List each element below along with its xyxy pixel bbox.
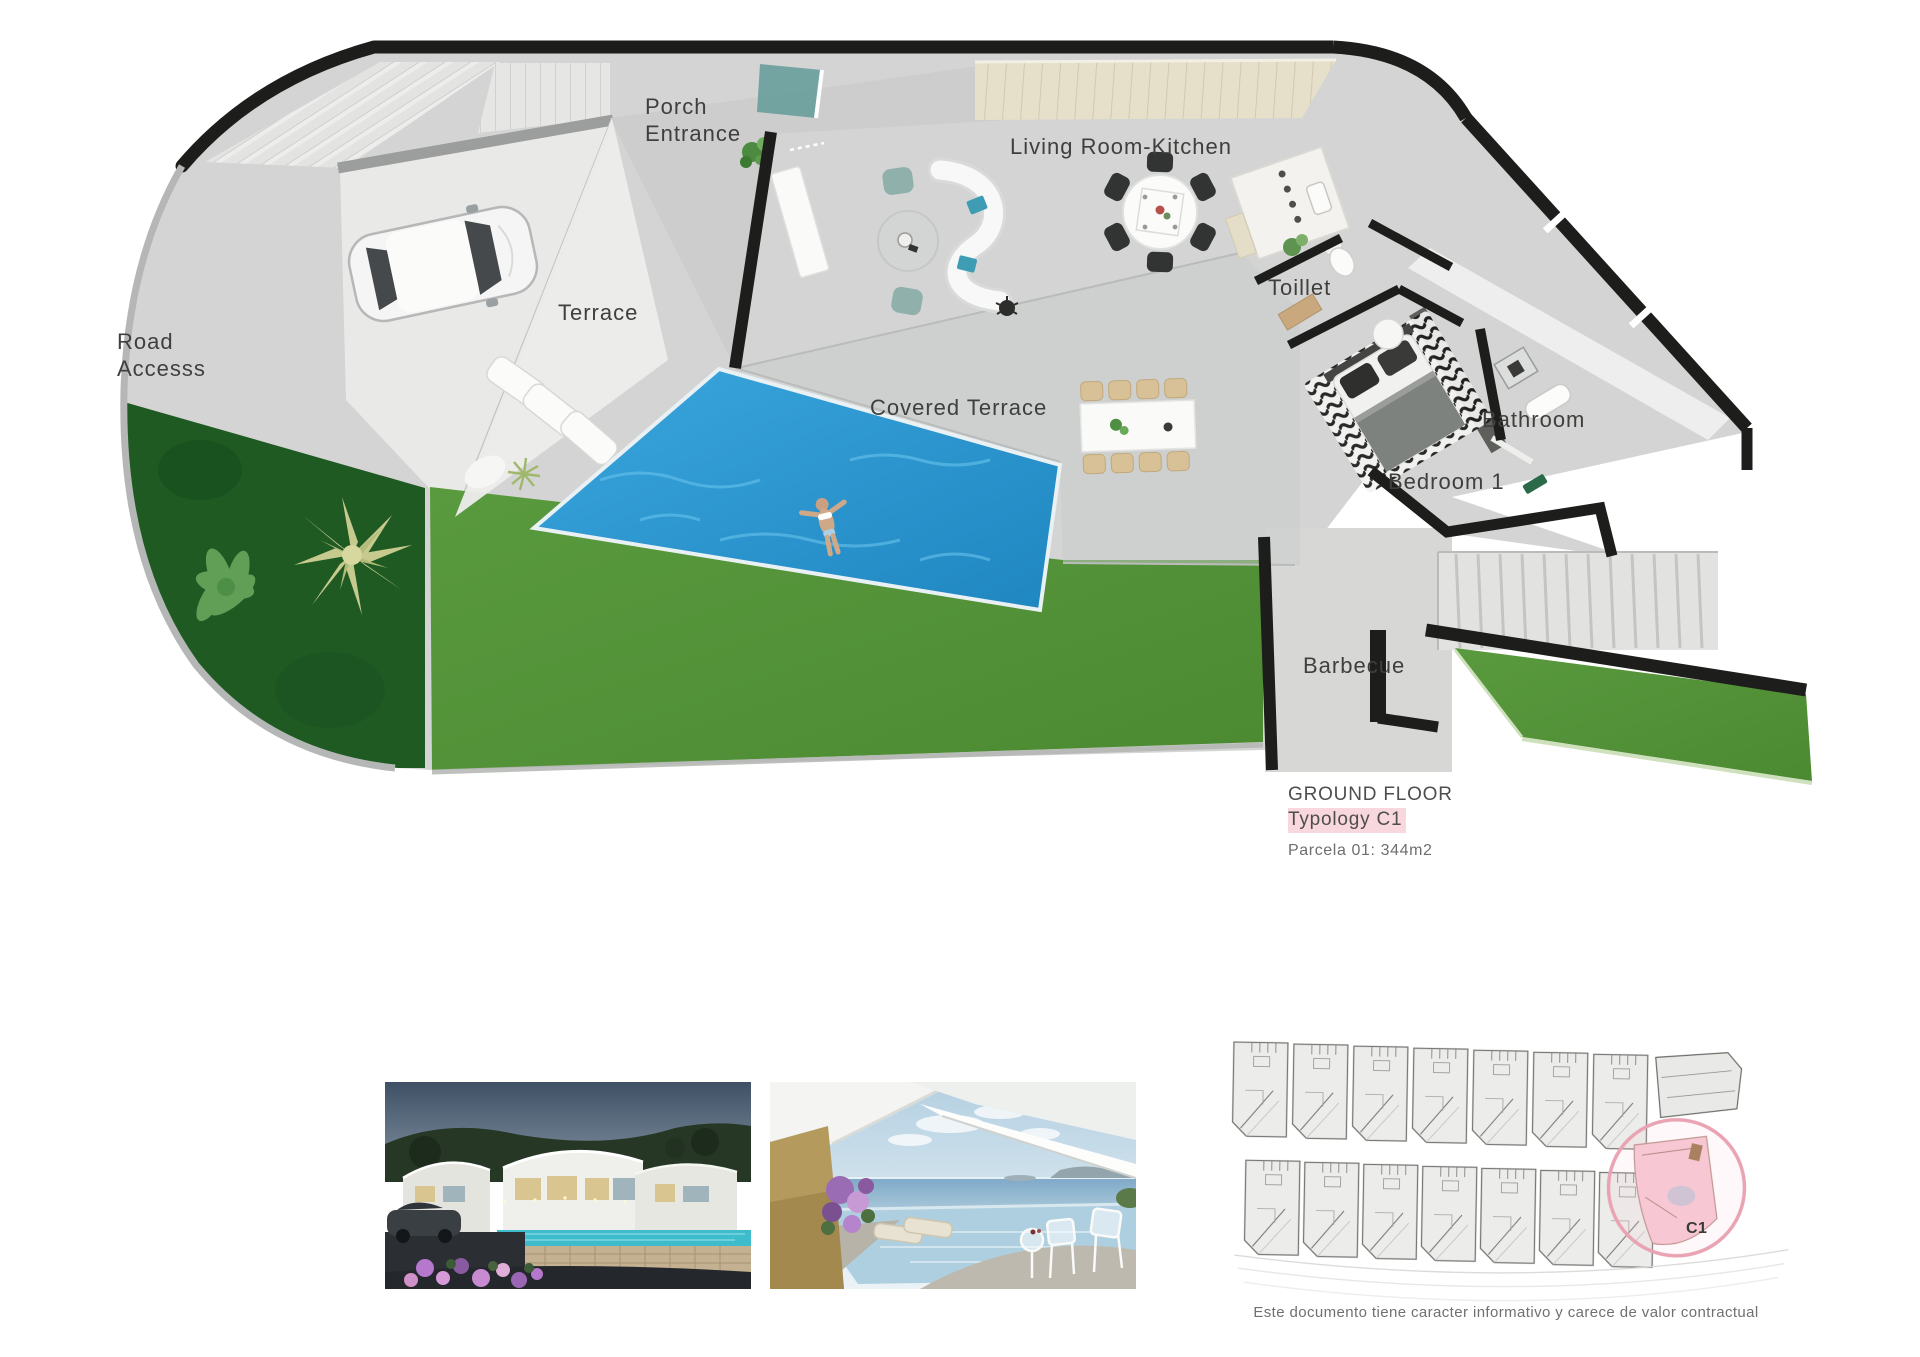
site-plan-map bbox=[1230, 1042, 1792, 1306]
floor-plan-illustration bbox=[0, 0, 1920, 1357]
garden-shade bbox=[275, 652, 385, 728]
photo-villa-exterior bbox=[385, 1082, 751, 1289]
plan-typology: Typology C1 bbox=[1288, 808, 1406, 833]
ottoman bbox=[881, 166, 914, 196]
photo-terrace-view bbox=[770, 1082, 1144, 1289]
plan-title: GROUND FLOOR bbox=[1288, 784, 1453, 806]
bedside-table bbox=[1373, 319, 1403, 349]
wall bbox=[1370, 630, 1386, 722]
page: Porch Entrance Living Room-Kitchen Terra… bbox=[0, 0, 1920, 1357]
site-unit-c1 bbox=[1607, 1119, 1745, 1257]
c1-highlight-circle bbox=[1607, 1119, 1745, 1257]
garden-shade bbox=[158, 440, 242, 500]
deck-edge bbox=[975, 60, 1336, 62]
wood-deck bbox=[975, 60, 1336, 120]
floor-plan bbox=[124, 47, 1812, 783]
plan-parcela: Parcela 01: 344m2 bbox=[1288, 842, 1453, 860]
site-unit-label: C1 bbox=[1686, 1220, 1707, 1238]
title-block: GROUND FLOOR Typology C1 Parcela 01: 344… bbox=[1288, 784, 1453, 860]
disclaimer-text: Este documento tiene caracter informativ… bbox=[1196, 1304, 1816, 1321]
site-unit-top-right bbox=[1655, 1051, 1742, 1118]
